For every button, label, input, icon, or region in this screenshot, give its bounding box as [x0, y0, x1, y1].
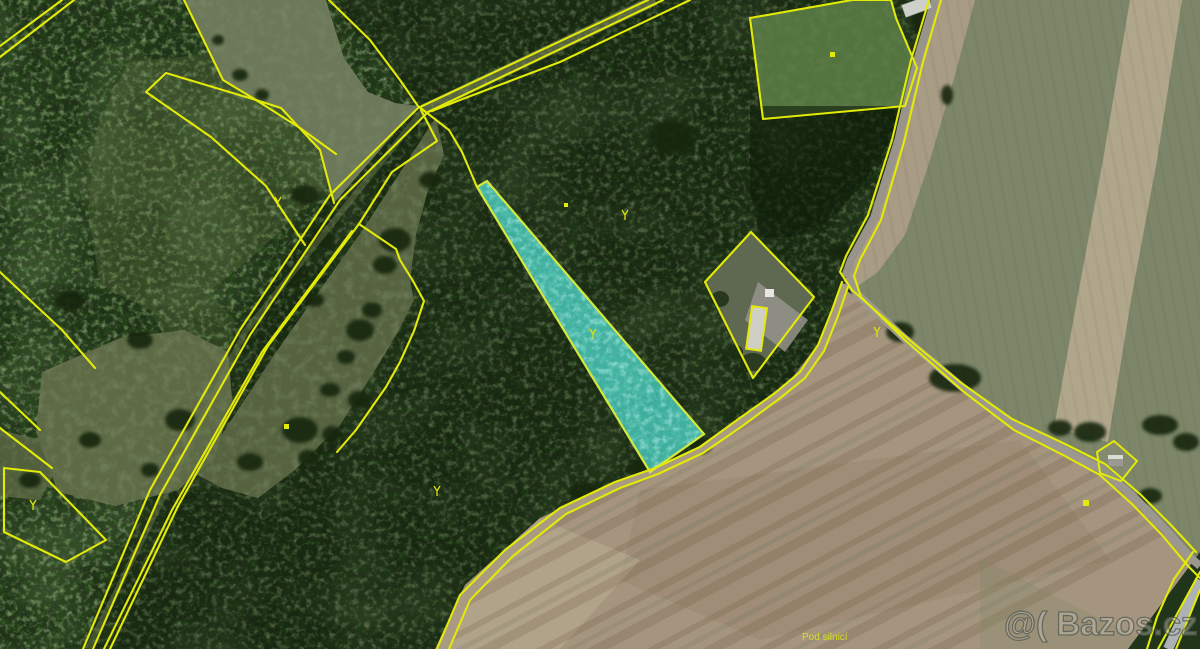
svg-text:Pod silnicí: Pod silnicí	[802, 632, 848, 643]
svg-text:@( Bazos.cz: @( Bazos.cz	[1004, 605, 1198, 642]
